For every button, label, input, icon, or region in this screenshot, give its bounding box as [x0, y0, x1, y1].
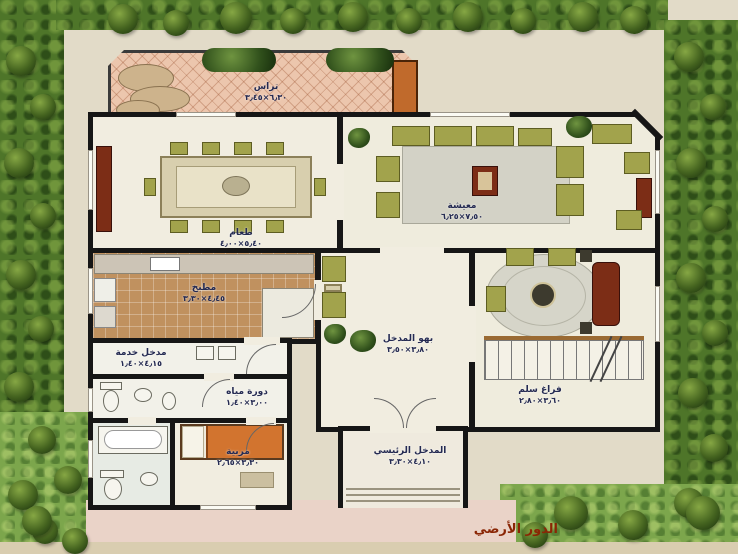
tree-icon [30, 94, 56, 120]
tree-icon [510, 8, 536, 34]
tree-icon [108, 4, 138, 34]
hedge-right [664, 20, 738, 508]
room-dims: ٤٫١٥×١٫٤٠ [120, 359, 162, 368]
label-terrace: تراس ٦٫٣٠×٣٫٤٥ [218, 76, 314, 108]
room-name: تراس [254, 82, 278, 92]
tree-icon [568, 2, 598, 32]
tree-icon [554, 496, 588, 530]
room-name: مدخل خدمة [115, 348, 166, 358]
wc-tank [100, 470, 124, 478]
kitchen-counter [94, 254, 314, 274]
window [655, 286, 660, 342]
living-sofa [556, 184, 584, 216]
pavement-bottom-strip [0, 542, 738, 554]
room-name: طعام [229, 228, 253, 238]
room-name: مربية [226, 447, 250, 457]
label-entrance: المدخل الرئيسي ٤٫١٠×٣٫٣٠ [358, 440, 462, 472]
wc-tank [100, 382, 122, 390]
room-name: مطبخ [192, 283, 217, 293]
label-service: مدخل خدمة ٤٫١٥×١٫٤٠ [94, 342, 188, 374]
bay-loveseat [592, 124, 632, 144]
floor-caption: الدور الأرضي [434, 522, 558, 544]
window [88, 268, 93, 314]
room-dims: ٥٫٤٠×٤٫٠٠ [220, 239, 262, 248]
salon-armchair [506, 248, 534, 266]
room-dims: ٤٫٤٥×٣٫٣٠ [183, 294, 225, 303]
terrace-shrub-icon [326, 48, 394, 72]
wc-bowl [103, 390, 119, 412]
tree-icon [280, 8, 306, 34]
dining-chair [266, 142, 284, 155]
label-maid: مربية ٣٫٣٠×٢٫٦٥ [194, 442, 282, 472]
label-hall: بهو المدخل ٣٫٨٠×٣٫٥٠ [354, 328, 462, 360]
hall-chair [322, 292, 346, 318]
salon-side-table [580, 322, 592, 334]
tree-icon [674, 42, 704, 72]
kitchen-stove [94, 306, 116, 328]
dining-centerpiece [222, 176, 250, 196]
tree-icon [28, 426, 56, 454]
room-name: المدخل الرئيسي [374, 446, 447, 456]
kitchen-sink [150, 257, 180, 271]
washer [196, 346, 214, 360]
dining-sideboard [96, 146, 112, 232]
room-name: معيشة [448, 201, 477, 211]
maid-rug [240, 472, 274, 488]
window [88, 440, 93, 478]
bathtub-inner [104, 430, 162, 449]
bay-armchair [624, 152, 650, 174]
tree-icon [54, 466, 82, 494]
living-armchair [376, 192, 400, 218]
dining-chair [202, 142, 220, 155]
dining-chair [144, 178, 156, 196]
living-coffee-table-top [478, 172, 492, 190]
tree-icon [6, 260, 36, 290]
dining-chair [170, 220, 188, 233]
hall-chair [322, 256, 346, 282]
tree-icon [676, 263, 706, 293]
opening-hall-salon [468, 306, 476, 362]
salon-armchair [548, 248, 576, 266]
tree-icon [686, 496, 720, 530]
window [430, 112, 510, 117]
tree-icon [4, 372, 34, 402]
washer [218, 346, 236, 360]
tree-icon [62, 528, 88, 554]
window [200, 505, 256, 510]
opening-living-hall [380, 247, 444, 255]
salon-sofa [592, 262, 620, 326]
dining-chair [234, 142, 252, 155]
salon-table [530, 282, 556, 308]
living-armchair [376, 156, 400, 182]
porch-step [346, 500, 460, 502]
terrace-door [176, 112, 236, 117]
basin [140, 472, 158, 486]
staircase [484, 340, 644, 380]
terrace-shrub-icon [202, 48, 276, 72]
salon-armchair [486, 286, 506, 312]
terrace-planter [392, 60, 418, 118]
room-dims: ٣٫٨٠×٣٫٥٠ [387, 345, 429, 354]
tree-icon [22, 506, 52, 536]
living-sofa [518, 128, 552, 146]
room-dims: ٧٫٥٠×٦٫٢٥ [441, 212, 483, 221]
salon-side-table [580, 250, 592, 262]
room-dims: ٣٫٦٠×٢٫٨٠ [519, 396, 561, 405]
tree-icon [702, 320, 728, 346]
wc-bowl [104, 478, 122, 500]
bidet [162, 392, 176, 410]
dining-chair [170, 142, 188, 155]
dining-chair [314, 178, 326, 196]
tree-icon [453, 2, 483, 32]
tree-icon [618, 510, 648, 540]
bay-armchair [616, 210, 642, 230]
room-name: دورة مياه [226, 387, 268, 397]
hall-console [324, 284, 342, 292]
tree-icon [6, 46, 36, 76]
porch-step [346, 488, 460, 490]
room-dims: ٣٫٣٠×٢٫٦٥ [217, 458, 259, 467]
living-sofa [434, 126, 472, 146]
door-gap-bath [128, 417, 156, 425]
tree-icon [676, 148, 706, 178]
tree-icon [30, 203, 56, 229]
living-sofa [392, 126, 430, 146]
room-name: فراغ سلم [518, 385, 561, 395]
room-dims: ٦٫٣٠×٣٫٤٥ [245, 93, 287, 102]
tree-icon [4, 148, 34, 178]
room-dims: ٤٫١٠×٣٫٣٠ [389, 457, 431, 466]
tree-icon [678, 378, 708, 408]
floor-plan-canvas: تراس ٦٫٣٠×٣٫٤٥ طعام ٥٫٤٠×٤٫٠٠ معيشة ٧٫٥٠… [0, 0, 738, 554]
room-dims: ٣٫٠٠×١٫٤٠ [226, 398, 268, 407]
window [88, 388, 93, 412]
tree-icon [163, 10, 189, 36]
label-toilet: دورة مياه ٣٫٠٠×١٫٤٠ [210, 382, 284, 412]
tree-icon [396, 8, 422, 34]
tree-icon [700, 434, 728, 462]
tree-icon [338, 2, 368, 32]
label-living: معيشة ٧٫٥٠×٦٫٢٥ [406, 196, 518, 226]
tree-icon [28, 316, 54, 342]
tree-icon [620, 6, 648, 34]
window [88, 150, 93, 210]
kitchen-fridge [94, 278, 116, 302]
tree-icon [220, 2, 252, 34]
living-sofa [556, 146, 584, 178]
porch-step [346, 494, 460, 496]
window [655, 150, 660, 214]
basin [134, 388, 152, 402]
label-stairs: فراغ سلم ٣٫٦٠×٢٫٨٠ [494, 380, 586, 410]
tree-icon [700, 94, 726, 120]
label-kitchen: مطبخ ٤٫٤٥×٣٫٣٠ [152, 278, 256, 308]
opening-dining-living [336, 164, 344, 220]
label-dining: طعام ٥٫٤٠×٤٫٠٠ [192, 226, 290, 250]
room-name: بهو المدخل [383, 334, 433, 344]
tree-icon [702, 206, 728, 232]
living-sofa [476, 126, 514, 146]
